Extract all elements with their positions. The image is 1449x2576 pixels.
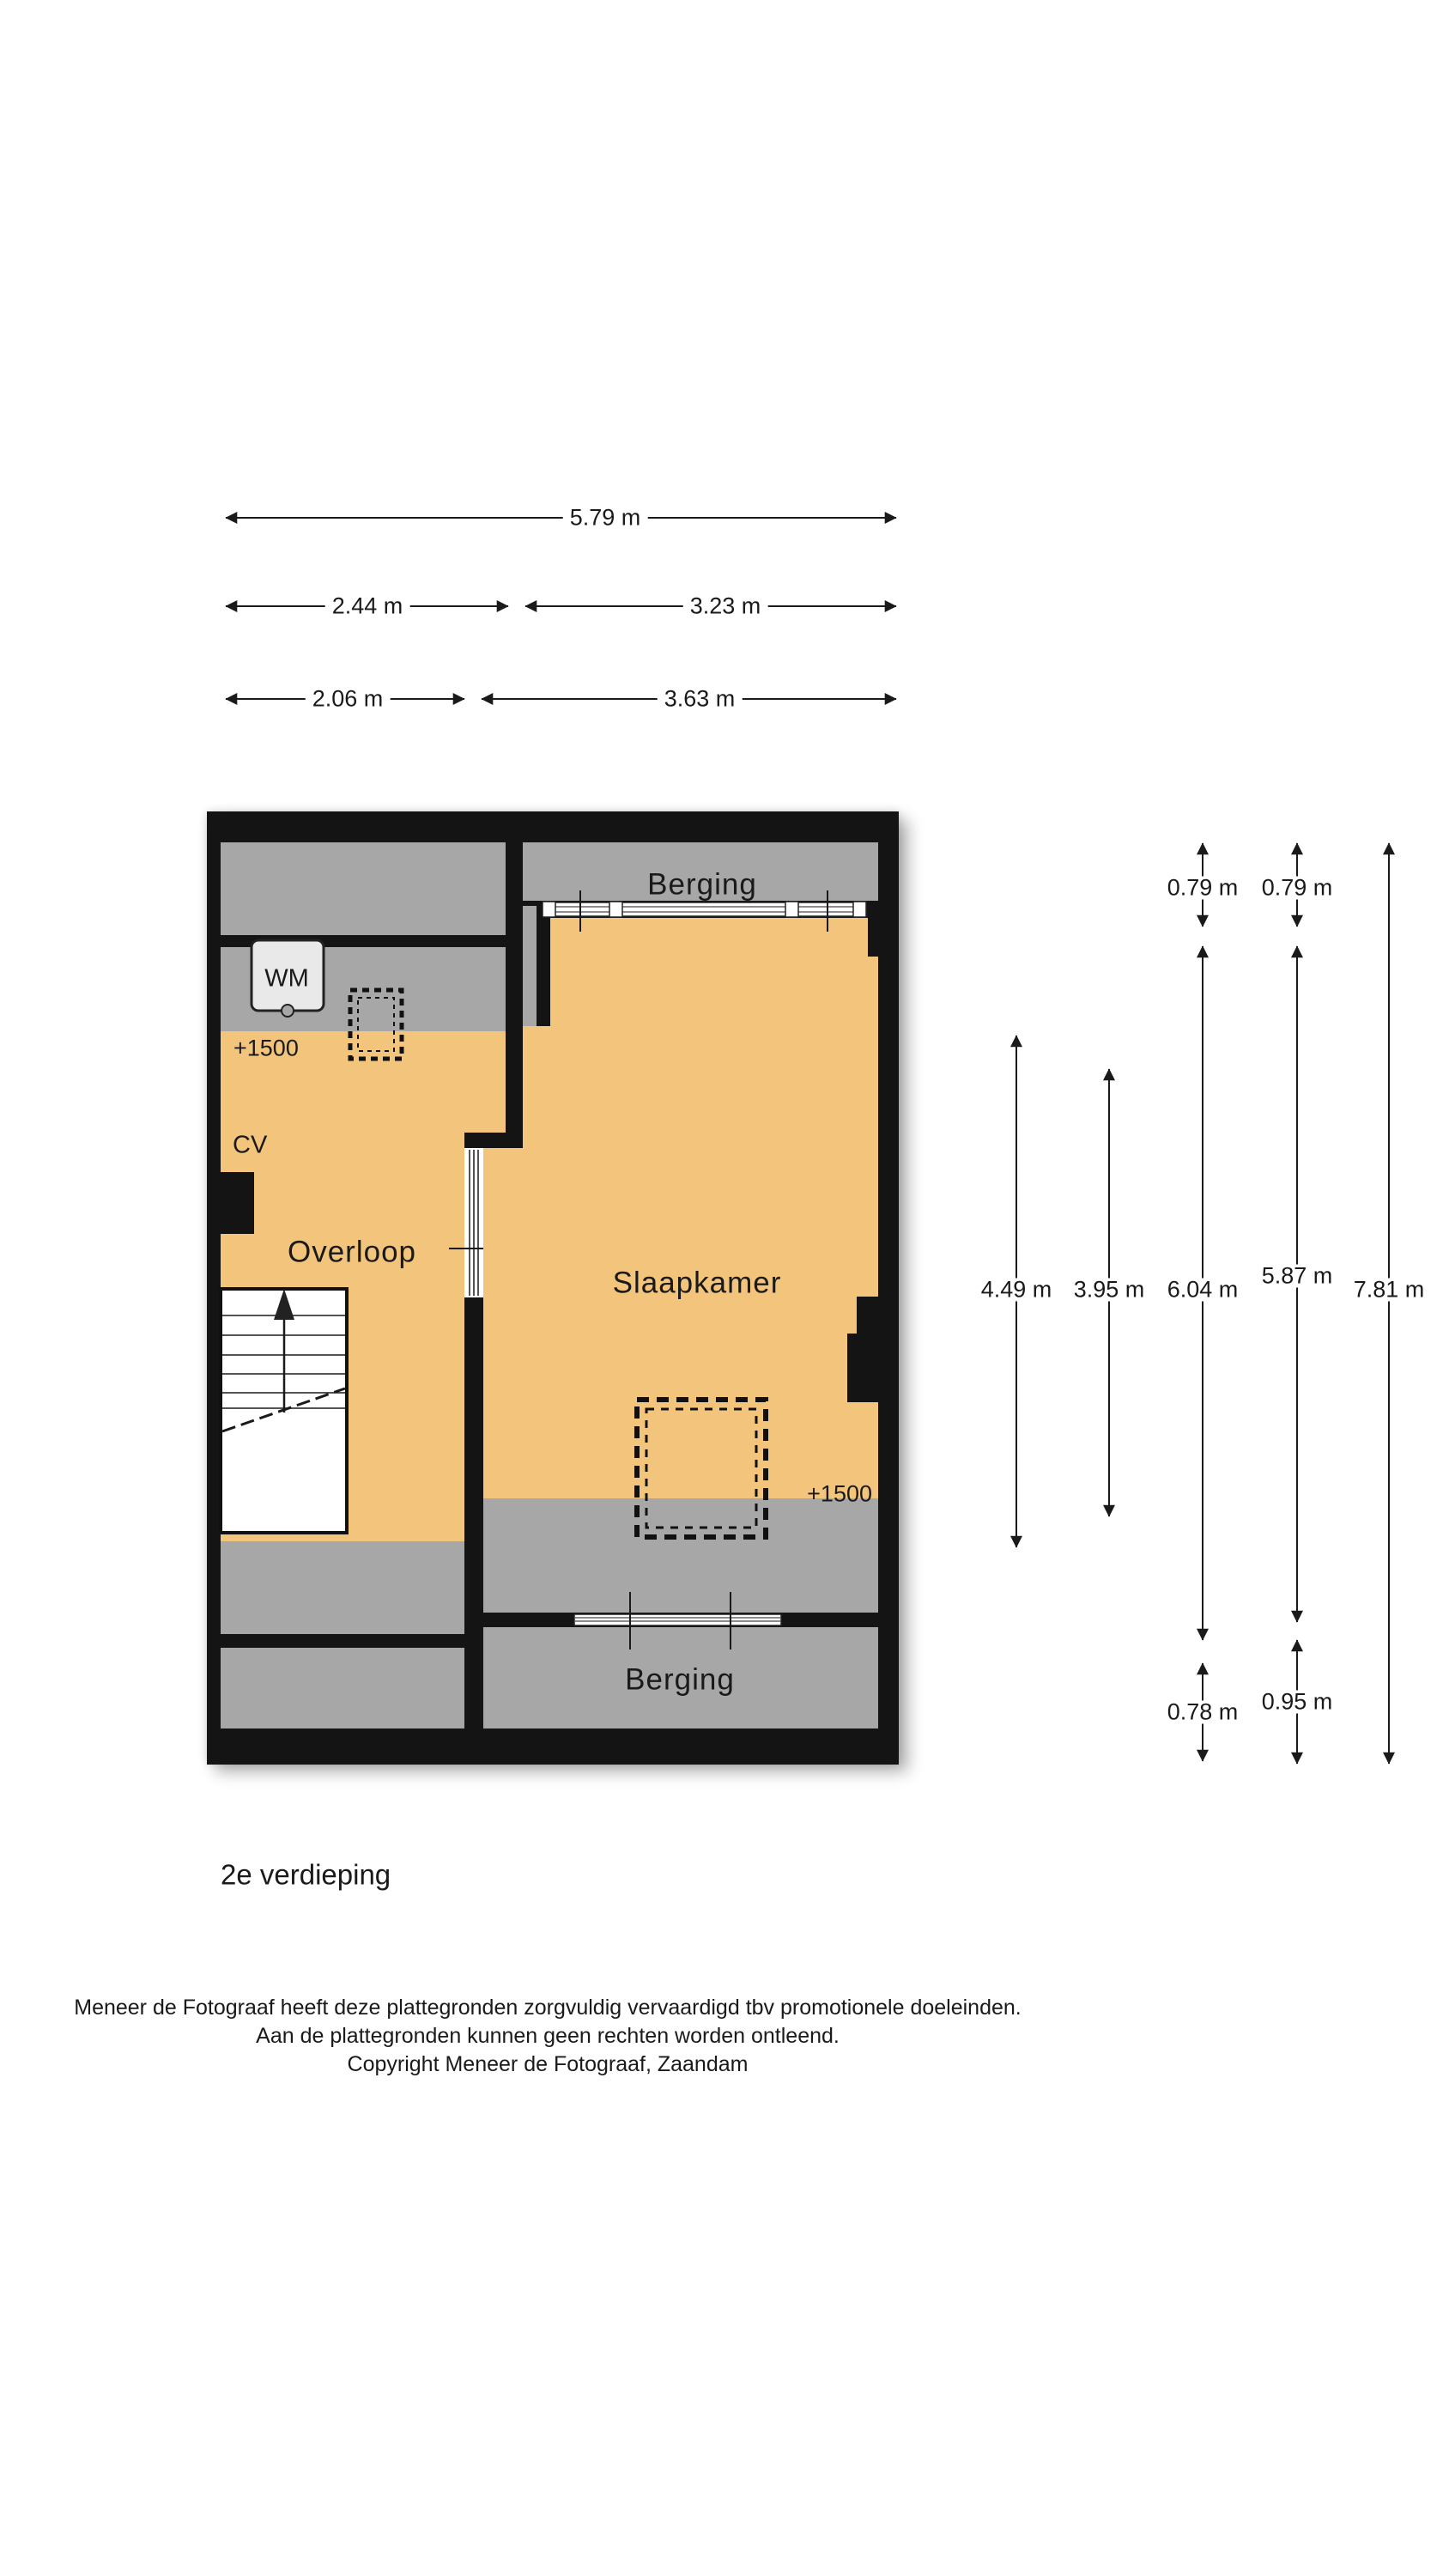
stairs [221, 1289, 347, 1533]
room-label-berging-bottom: Berging [625, 1665, 735, 1695]
dim-label-604: 6.04 m [1161, 1279, 1246, 1302]
slaapkamer-reduced-height [483, 1498, 878, 1613]
copyright-line-2: Aan de plattegronden kunnen geen rechten… [74, 2022, 1022, 2050]
copyright-block: Meneer de Fotograaf heeft deze plattegro… [74, 1994, 1022, 2079]
dim-label-row3-right: 3.63 m [658, 688, 743, 711]
room-label-overloop: Overloop [288, 1237, 416, 1267]
dim-label-row2-right: 3.23 m [683, 595, 768, 618]
bottomleft-attic-floor [221, 1648, 464, 1728]
room-label-slaapkamer: Slaapkamer [613, 1268, 782, 1298]
room-slaapkamer-floor-west2 [483, 1148, 523, 1498]
cv-label: CV [233, 1133, 267, 1158]
chimney-upper [857, 1297, 878, 1334]
dim-label-total-width: 5.79 m [563, 507, 648, 530]
dim-label-449: 4.49 m [974, 1279, 1059, 1302]
height-marker-right: +1500 [807, 1483, 872, 1506]
wm-label: WM [264, 967, 309, 992]
gray-sliver [523, 906, 537, 1026]
dim-label-079a: 0.79 m [1161, 877, 1246, 900]
dim-label-row3-left: 2.06 m [306, 688, 391, 711]
height-marker-left: +1500 [233, 1037, 299, 1060]
wall-stub-topright [868, 914, 878, 957]
cv-unit-block [221, 1172, 254, 1234]
dim-label-row2-left: 2.44 m [325, 595, 410, 618]
chimney-lower [847, 1334, 878, 1402]
dim-label-395: 3.95 m [1067, 1279, 1152, 1302]
dim-label-079b: 0.79 m [1255, 877, 1340, 900]
floorplan-page: 5.79 m 2.44 m 3.23 m 2.06 m 3.63 m 0.79 … [0, 0, 1449, 2576]
right-dimension-lines [1016, 843, 1389, 1764]
floor-title: 2e verdieping [221, 1861, 391, 1889]
room-slaapkamer-floor-west [523, 1026, 550, 1498]
room-topleft-attic-floor [221, 842, 506, 935]
copyright-line-3: Copyright Meneer de Fotograaf, Zaandam [74, 2050, 1022, 2079]
dim-label-587: 5.87 m [1255, 1265, 1340, 1288]
copyright-line-1: Meneer de Fotograaf heeft deze plattegro… [74, 1994, 1022, 2022]
room-slaapkamer-floor [550, 918, 878, 1498]
overloop-reduced-height [221, 1541, 464, 1634]
dim-label-781: 7.81 m [1347, 1279, 1432, 1302]
floor-plan [207, 811, 899, 1765]
dim-label-095: 0.95 m [1255, 1691, 1340, 1714]
dim-label-078: 0.78 m [1161, 1701, 1246, 1724]
room-label-berging-top: Berging [647, 870, 757, 900]
